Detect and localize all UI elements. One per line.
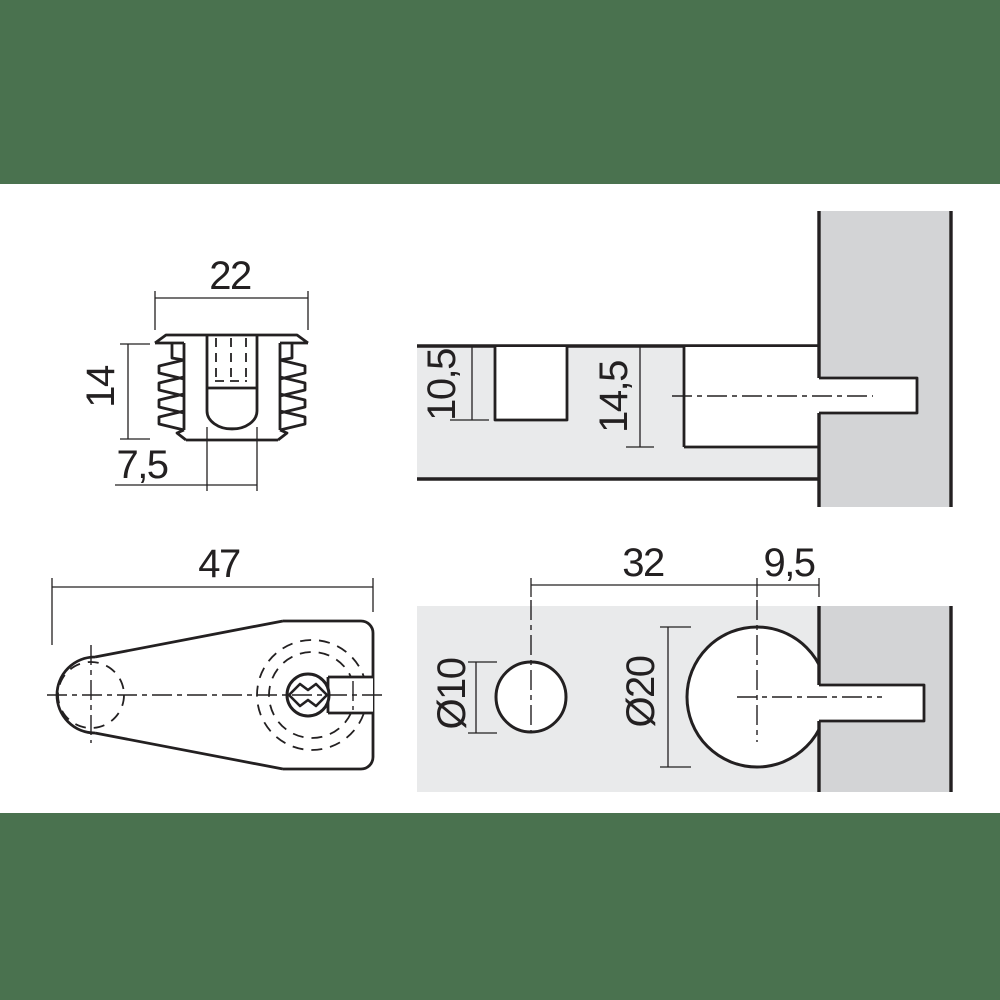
- fitting-right-ribs: [280, 360, 305, 430]
- dim-lines-height: [120, 344, 150, 439]
- drilling-plan-view: [417, 578, 951, 792]
- dim-label-pilot-hole-dia: Ø10: [432, 658, 472, 729]
- dim-label-top-hole-depth: 10,5: [422, 349, 462, 421]
- dim-label-front-slot-width: 7,5: [116, 445, 167, 485]
- technical-drawing: [0, 0, 1000, 1000]
- dim-label-fitting-length: 47: [198, 544, 240, 584]
- fitting-left-ribs: [159, 360, 184, 430]
- dim-label-hole-distance: 32: [622, 543, 664, 583]
- dim-label-cam-hole-depth: 14,5: [594, 361, 634, 433]
- side-panel-section: [819, 211, 951, 507]
- bolt-hole-section: [819, 378, 917, 413]
- cam-bore-section: [684, 347, 819, 447]
- dim-label-front-height: 14: [81, 366, 121, 408]
- dim-label-cam-hole-dia: Ø20: [621, 656, 661, 727]
- hidden-thread-lines: [215, 338, 247, 381]
- bolt-hole-plan: [819, 685, 924, 721]
- side-view: [47, 578, 382, 769]
- fitting-body-walls: [172, 343, 292, 440]
- section-view: [417, 211, 951, 507]
- dim-label-front-width: 22: [209, 256, 251, 296]
- drawing-page: 22 14 7,5 10,5 14,5 47 32 9,5 Ø10 Ø20: [0, 0, 1000, 1000]
- pilot-hole-section: [495, 347, 567, 419]
- screw-channel: [207, 335, 257, 429]
- dim-label-edge-distance: 9,5: [763, 543, 814, 583]
